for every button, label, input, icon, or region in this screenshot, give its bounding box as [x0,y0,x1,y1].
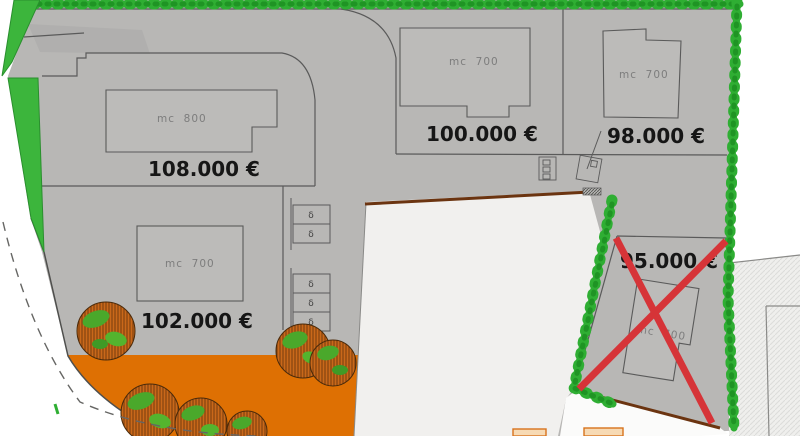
stall-symbol: δ [308,299,314,309]
existing-road-hatched [729,255,800,436]
price-label-100000: 100.000 € [426,122,538,146]
building-mc700-lot100 [400,28,530,117]
neighbour-building-stub [513,429,546,436]
site-plan: mc 700 mc 800 mc 700 mc 700 mc 700 δ δ δ… [0,0,800,436]
price-label-102000: 102.000 € [141,309,253,333]
tree-3 [310,340,356,386]
stall-symbol: δ [308,280,314,290]
tree-1 [77,302,135,360]
building-label: mc 700 [449,56,499,68]
utility-strip [583,188,601,195]
price-label-98000: 98.000 € [607,124,705,148]
building-label: mc 700 [165,258,215,270]
building-label: mc 700 [619,69,669,81]
stall-symbol: δ [308,230,314,240]
neighbour-building-stub [584,428,623,436]
empty-lot [354,191,601,436]
price-label-108000: 108.000 € [148,157,260,181]
building-label: mc 800 [157,113,207,125]
site-plan-drawing: mc 700 mc 800 mc 700 mc 700 mc 700 δ δ δ… [0,0,800,436]
stall-symbol: δ [308,211,314,221]
